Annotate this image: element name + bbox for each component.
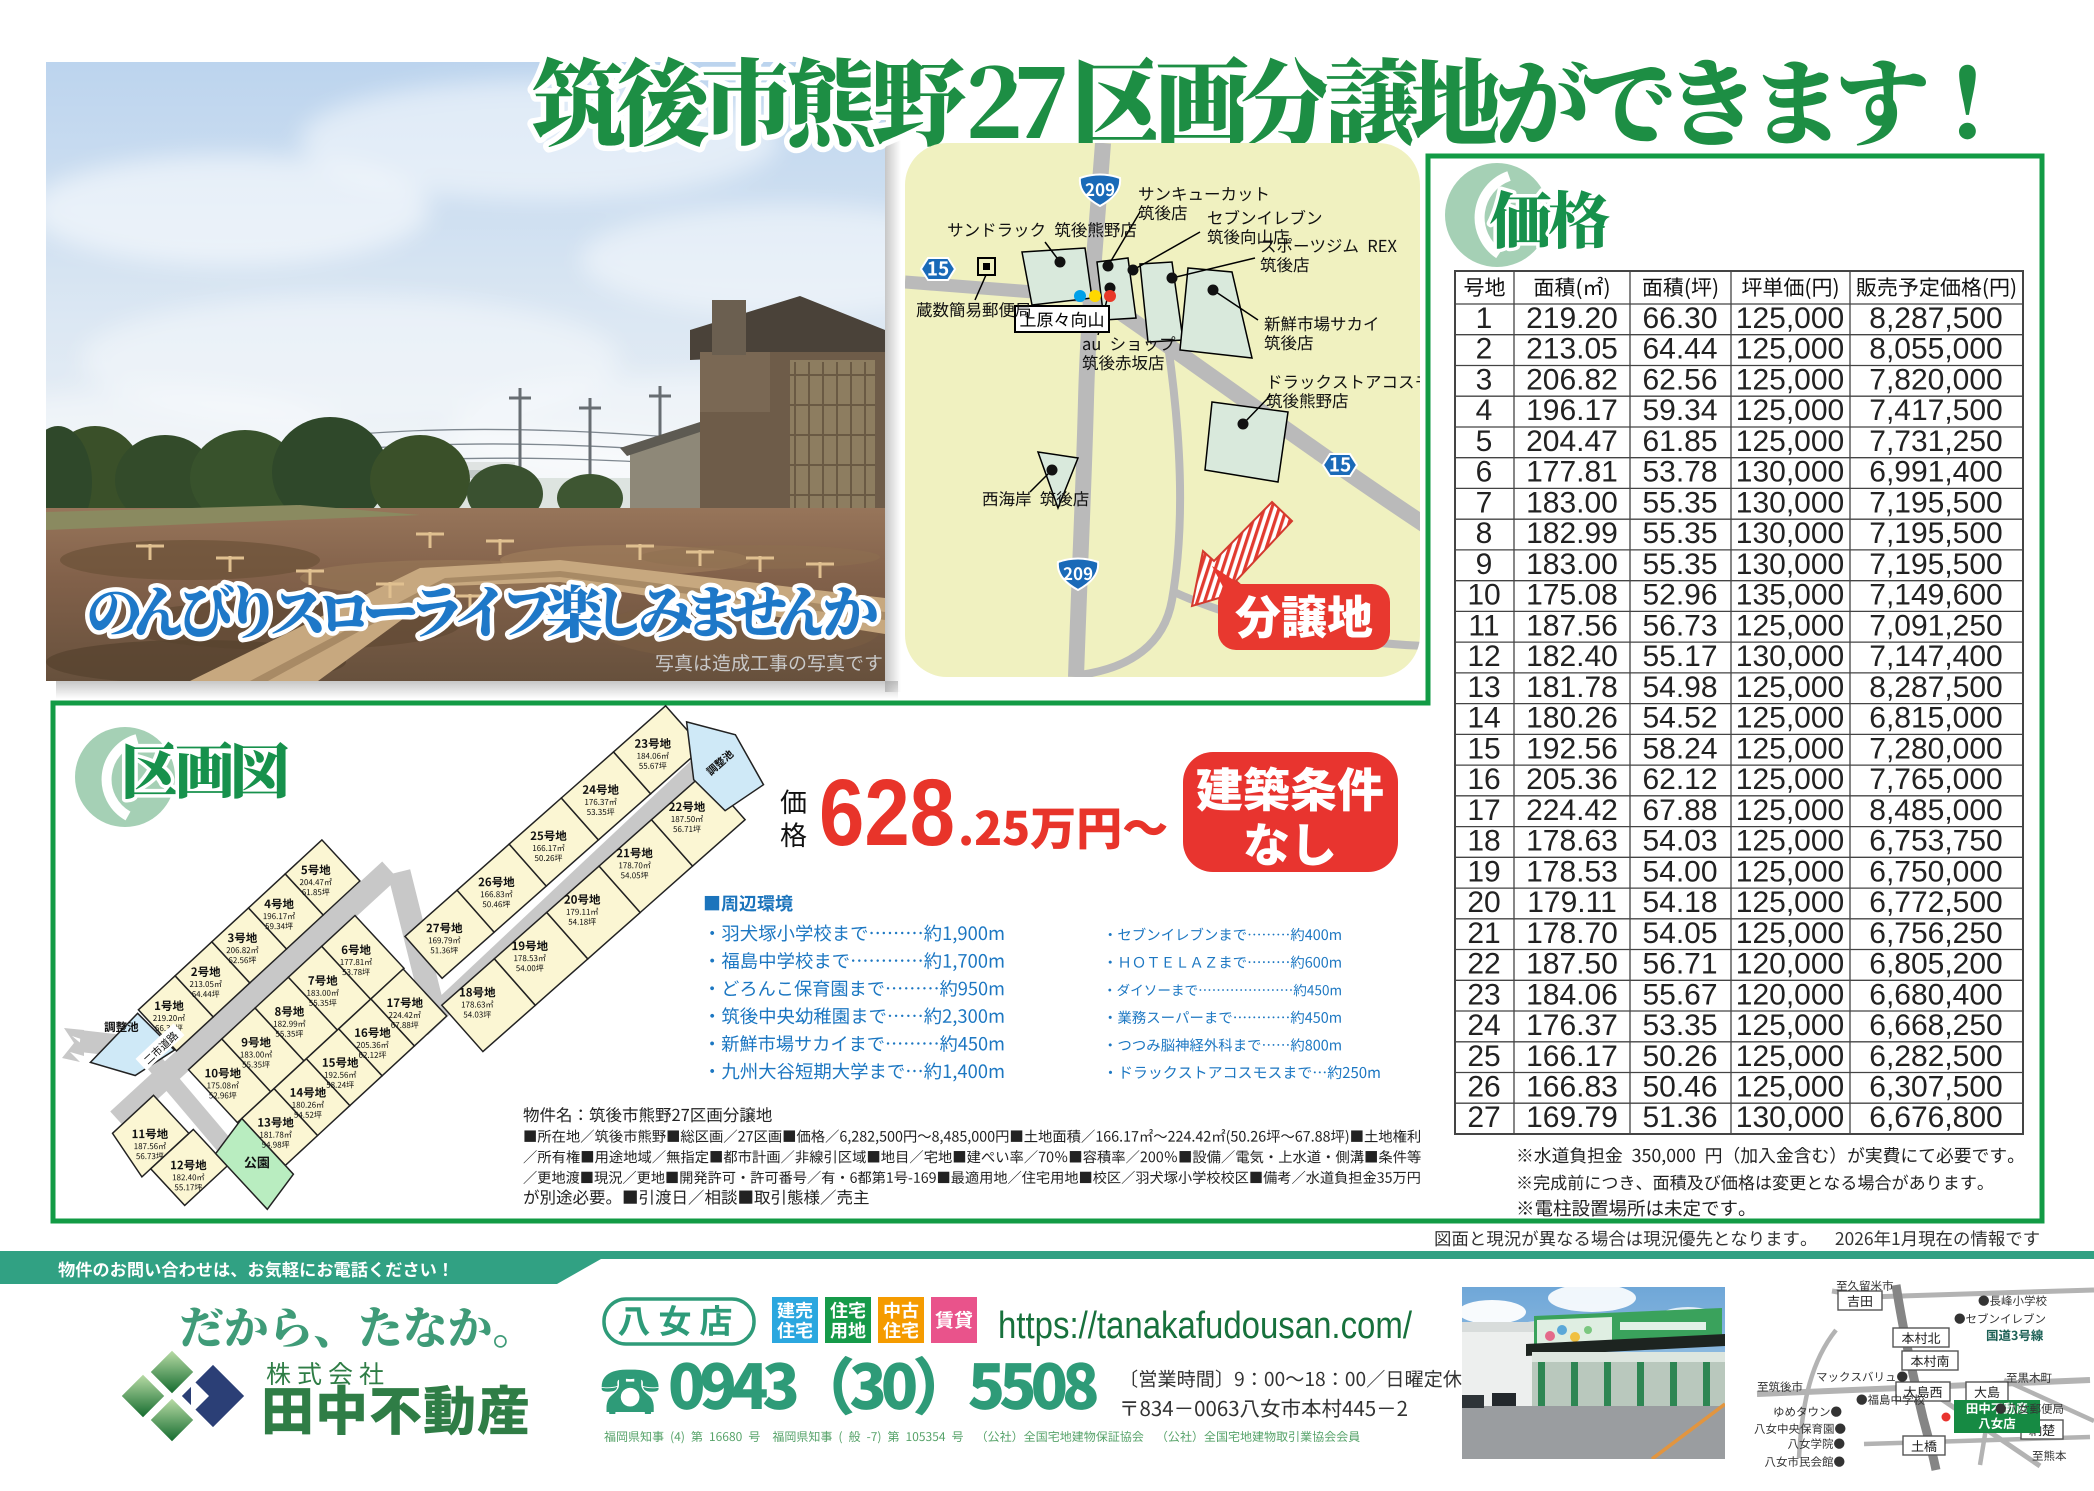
svg-text:176.37: 176.37 — [1526, 1009, 1618, 1042]
svg-text:50.26: 50.26 — [1642, 1040, 1717, 1073]
svg-text:166.17: 166.17 — [1526, 1040, 1618, 1073]
svg-text:21: 21 — [1467, 917, 1500, 950]
svg-text:6,680,400: 6,680,400 — [1869, 978, 2002, 1011]
svg-text:125,000: 125,000 — [1736, 825, 1844, 858]
svg-text:125,000: 125,000 — [1736, 671, 1844, 704]
svg-text:3: 3 — [1476, 364, 1493, 397]
svg-text:130,000: 130,000 — [1736, 548, 1844, 581]
svg-text:10: 10 — [1467, 579, 1500, 612]
svg-text:7,195,500: 7,195,500 — [1869, 517, 2002, 550]
svg-text:6,756,250: 6,756,250 — [1869, 917, 2002, 950]
svg-text:182.99: 182.99 — [1526, 517, 1618, 550]
svg-text:6,805,200: 6,805,200 — [1869, 948, 2002, 981]
svg-text:180.26: 180.26 — [1526, 702, 1618, 735]
svg-text:183.00: 183.00 — [1526, 486, 1618, 519]
svg-text:11: 11 — [1468, 609, 1499, 642]
svg-text:6,753,750: 6,753,750 — [1869, 825, 2002, 858]
svg-text:https://tanakafudousan.com/: https://tanakafudousan.com/ — [998, 1305, 1412, 1347]
svg-text:8,485,000: 8,485,000 — [1869, 794, 2002, 827]
svg-text:16: 16 — [1467, 763, 1500, 796]
svg-text:125,000: 125,000 — [1736, 609, 1844, 642]
svg-text:7,195,500: 7,195,500 — [1869, 548, 2002, 581]
svg-text:125,000: 125,000 — [1736, 1071, 1844, 1104]
svg-text:52.96: 52.96 — [1642, 579, 1717, 612]
svg-text:130,000: 130,000 — [1736, 1101, 1844, 1134]
svg-text:55.17: 55.17 — [1642, 640, 1717, 673]
svg-text:24: 24 — [1467, 1009, 1500, 1042]
svg-text:62.56: 62.56 — [1642, 364, 1717, 397]
svg-text:26: 26 — [1467, 1071, 1500, 1104]
svg-text:7,820,000: 7,820,000 — [1869, 364, 2002, 397]
svg-text:54.98: 54.98 — [1642, 671, 1717, 704]
svg-text:50.46: 50.46 — [1642, 1071, 1717, 1104]
svg-text:18: 18 — [1467, 825, 1500, 858]
svg-text:5: 5 — [1476, 425, 1493, 458]
svg-text:7,765,000: 7,765,000 — [1869, 763, 2002, 796]
svg-text:54.03: 54.03 — [1642, 825, 1717, 858]
svg-text:8: 8 — [1476, 517, 1493, 550]
svg-text:6,991,400: 6,991,400 — [1869, 456, 2002, 489]
svg-text:7,147,400: 7,147,400 — [1869, 640, 2002, 673]
svg-text:8,055,000: 8,055,000 — [1869, 333, 2002, 366]
svg-text:125,000: 125,000 — [1736, 763, 1844, 796]
svg-text:7,091,250: 7,091,250 — [1869, 609, 2002, 642]
svg-text:125,000: 125,000 — [1736, 855, 1844, 888]
svg-text:15: 15 — [1467, 732, 1500, 765]
svg-text:9: 9 — [1476, 548, 1493, 581]
svg-text:27: 27 — [1467, 1101, 1500, 1134]
svg-text:19: 19 — [1467, 855, 1500, 888]
svg-text:130,000: 130,000 — [1736, 517, 1844, 550]
svg-text:125,000: 125,000 — [1736, 364, 1844, 397]
svg-text:53.78: 53.78 — [1642, 456, 1717, 489]
svg-text:66.30: 66.30 — [1642, 302, 1717, 335]
svg-text:67.88: 67.88 — [1642, 794, 1717, 827]
svg-text:178.53: 178.53 — [1526, 855, 1618, 888]
svg-text:54.05: 54.05 — [1642, 917, 1717, 950]
svg-text:135,000: 135,000 — [1736, 579, 1844, 612]
svg-text:179.11: 179.11 — [1527, 886, 1617, 919]
svg-text:205.36: 205.36 — [1526, 763, 1618, 796]
svg-text:213.05: 213.05 — [1526, 333, 1618, 366]
svg-text:2: 2 — [1476, 333, 1493, 366]
svg-text:178.70: 178.70 — [1526, 917, 1618, 950]
svg-text:181.78: 181.78 — [1526, 671, 1618, 704]
svg-text:62.12: 62.12 — [1642, 763, 1717, 796]
svg-text:61.85: 61.85 — [1642, 425, 1717, 458]
svg-text:204.47: 204.47 — [1526, 425, 1618, 458]
svg-text:177.81: 177.81 — [1526, 456, 1618, 489]
svg-text:22: 22 — [1467, 948, 1500, 981]
svg-text:55.35: 55.35 — [1642, 517, 1717, 550]
svg-text:187.56: 187.56 — [1526, 609, 1618, 642]
svg-text:7,195,500: 7,195,500 — [1869, 486, 2002, 519]
svg-text:6,772,500: 6,772,500 — [1869, 886, 2002, 919]
svg-text:12: 12 — [1467, 640, 1500, 673]
svg-text:51.36: 51.36 — [1642, 1101, 1717, 1134]
svg-text:130,000: 130,000 — [1736, 456, 1844, 489]
svg-text:125,000: 125,000 — [1736, 394, 1844, 427]
svg-text:23: 23 — [1467, 978, 1500, 1011]
svg-text:184.06: 184.06 — [1526, 978, 1618, 1011]
svg-text:125,000: 125,000 — [1736, 1009, 1844, 1042]
svg-text:8,287,500: 8,287,500 — [1869, 671, 2002, 704]
svg-text:54.52: 54.52 — [1642, 702, 1717, 735]
svg-text:125,000: 125,000 — [1736, 794, 1844, 827]
svg-text:7,417,500: 7,417,500 — [1869, 394, 2002, 427]
svg-text:7,731,250: 7,731,250 — [1869, 425, 2002, 458]
svg-text:17: 17 — [1467, 794, 1500, 827]
svg-text:125,000: 125,000 — [1736, 886, 1844, 919]
svg-text:64.44: 64.44 — [1642, 333, 1717, 366]
svg-text:56.71: 56.71 — [1642, 948, 1717, 981]
svg-text:224.42: 224.42 — [1526, 794, 1618, 827]
svg-text:7: 7 — [1476, 486, 1493, 519]
svg-text:125,000: 125,000 — [1736, 702, 1844, 735]
svg-text:7,149,600: 7,149,600 — [1869, 579, 2002, 612]
svg-text:6,676,800: 6,676,800 — [1869, 1101, 2002, 1134]
svg-text:175.08: 175.08 — [1526, 579, 1618, 612]
svg-text:4: 4 — [1476, 394, 1493, 427]
svg-text:178.63: 178.63 — [1526, 825, 1618, 858]
svg-text:125,000: 125,000 — [1736, 425, 1844, 458]
svg-text:125,000: 125,000 — [1736, 333, 1844, 366]
svg-text:55.35: 55.35 — [1642, 548, 1717, 581]
svg-text:125,000: 125,000 — [1736, 732, 1844, 765]
svg-text:13: 13 — [1467, 671, 1500, 704]
svg-text:59.34: 59.34 — [1642, 394, 1717, 427]
svg-text:196.17: 196.17 — [1526, 394, 1618, 427]
svg-text:6,282,500: 6,282,500 — [1869, 1040, 2002, 1073]
svg-text:6,307,500: 6,307,500 — [1869, 1071, 2002, 1104]
svg-text:1: 1 — [1476, 302, 1493, 335]
svg-text:130,000: 130,000 — [1736, 640, 1844, 673]
svg-text:20: 20 — [1467, 886, 1500, 919]
svg-text:55.35: 55.35 — [1642, 486, 1717, 519]
svg-text:166.83: 166.83 — [1526, 1071, 1618, 1104]
svg-text:56.73: 56.73 — [1642, 609, 1717, 642]
svg-text:6,815,000: 6,815,000 — [1869, 702, 2002, 735]
svg-text:125,000: 125,000 — [1736, 917, 1844, 950]
svg-text:192.56: 192.56 — [1526, 732, 1618, 765]
svg-text:120,000: 120,000 — [1736, 948, 1844, 981]
svg-text:6,750,000: 6,750,000 — [1869, 855, 2002, 888]
svg-text:182.40: 182.40 — [1526, 640, 1618, 673]
svg-text:25: 25 — [1467, 1040, 1500, 1073]
svg-text:53.35: 53.35 — [1642, 1009, 1717, 1042]
svg-text:169.79: 169.79 — [1526, 1101, 1618, 1134]
svg-text:628: 628 — [819, 760, 955, 866]
svg-text:55.67: 55.67 — [1642, 978, 1717, 1011]
svg-text:130,000: 130,000 — [1736, 486, 1844, 519]
svg-text:125,000: 125,000 — [1736, 302, 1844, 335]
svg-text:219.20: 219.20 — [1526, 302, 1618, 335]
svg-text:183.00: 183.00 — [1526, 548, 1618, 581]
svg-text:54.18: 54.18 — [1642, 886, 1717, 919]
svg-text:54.00: 54.00 — [1642, 855, 1717, 888]
svg-text:8,287,500: 8,287,500 — [1869, 302, 2002, 335]
svg-text:58.24: 58.24 — [1642, 732, 1717, 765]
svg-text:6: 6 — [1476, 456, 1493, 489]
svg-text:14: 14 — [1467, 702, 1500, 735]
svg-text:120,000: 120,000 — [1736, 978, 1844, 1011]
svg-text:125,000: 125,000 — [1736, 1040, 1844, 1073]
svg-text:206.82: 206.82 — [1526, 364, 1618, 397]
svg-text:6,668,250: 6,668,250 — [1869, 1009, 2002, 1042]
svg-text:187.50: 187.50 — [1526, 948, 1618, 981]
svg-text:7,280,000: 7,280,000 — [1869, 732, 2002, 765]
